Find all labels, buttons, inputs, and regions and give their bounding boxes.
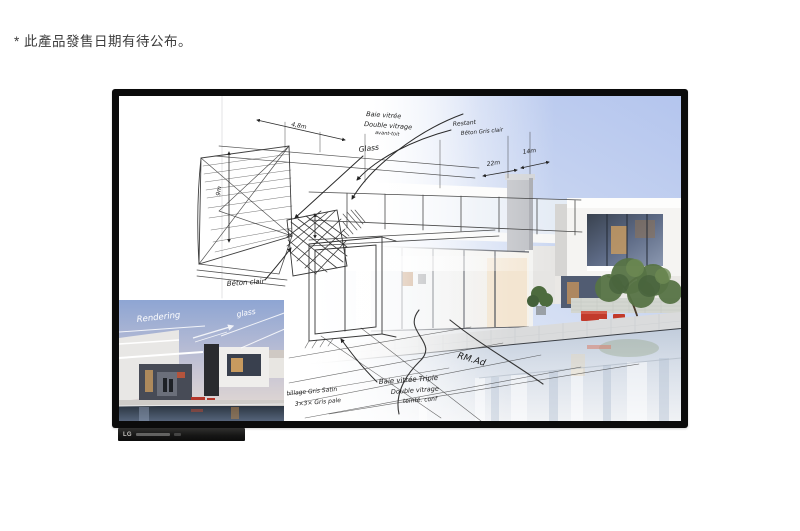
screen-image: Baie vitrée Double vitrage avant-toit Re… [119, 96, 681, 421]
rendering-inset: Rendering glass [119, 300, 287, 421]
product-bar: LG [118, 428, 245, 441]
display-screen: Baie vitrée Double vitrage avant-toit Re… [119, 96, 681, 421]
product-bar-text-strip-2 [174, 433, 181, 436]
display-panel: Baie vitrée Double vitrage avant-toit Re… [112, 89, 688, 428]
product-bar-text-strip [136, 433, 170, 436]
release-date-disclaimer: * 此產品發售日期有待公布。 [14, 30, 192, 50]
inset-border [284, 300, 287, 421]
dimension-height: 9m [215, 186, 223, 197]
lg-logo: LG [123, 432, 132, 438]
